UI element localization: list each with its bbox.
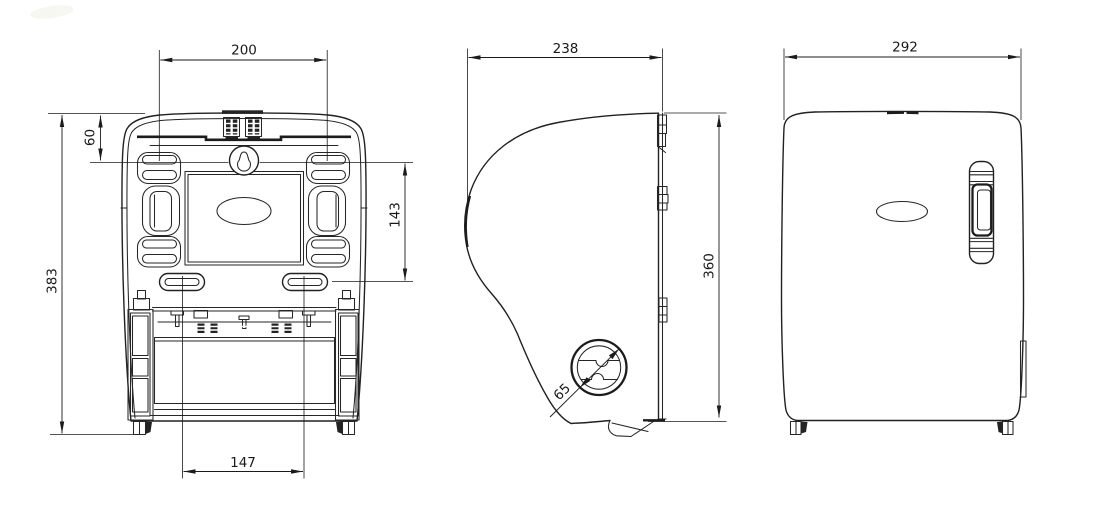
tray-channel-right	[336, 310, 360, 421]
dimensions: 200 60 383 143 147	[45, 40, 1022, 479]
knob-slot-top	[579, 361, 620, 367]
dim-label-238: 238	[553, 41, 579, 57]
dim-back-mount-width: 200	[159, 43, 327, 162]
front-foot-left	[791, 422, 808, 435]
dim-label-292: 292	[892, 40, 918, 56]
front-oval-emboss	[877, 202, 928, 222]
center-panel	[185, 172, 304, 266]
back-foot-right	[336, 422, 355, 435]
hinge-post-right	[339, 291, 355, 311]
top-clip-assembly	[222, 110, 263, 141]
keyhole-mount	[230, 146, 259, 175]
dim-back-lower-slots: 147	[183, 276, 305, 479]
dim-label-360: 360	[702, 253, 718, 279]
dim-back-top-offset: 60	[48, 114, 145, 161]
dim-side-depth: 238	[468, 41, 663, 209]
side-profile-outline	[465, 113, 658, 423]
dim-label-143: 143	[388, 202, 404, 228]
dim-label-65: 65	[550, 380, 573, 403]
mount-slot-group-bottom-left	[138, 237, 181, 268]
oval-emboss	[217, 198, 271, 225]
front-foot-right	[997, 422, 1013, 435]
mount-slot-group-top-right	[307, 153, 350, 184]
front-lever	[970, 162, 994, 264]
front-view	[782, 111, 1027, 434]
tray-channel-left	[128, 310, 153, 421]
side-latch-left	[143, 186, 180, 236]
dim-front-width: 292	[784, 40, 1021, 121]
bottom-tray	[128, 308, 359, 435]
top-inner-band	[137, 137, 351, 140]
dim-label-383: 383	[45, 268, 61, 294]
bottom-nozzle	[608, 420, 665, 436]
dim-label-147: 147	[230, 455, 256, 471]
technical-drawing: 200 60 383 143 147	[0, 0, 1094, 526]
turn-knob	[572, 340, 627, 395]
dim-label-200: 200	[231, 43, 257, 59]
faint-watermark	[29, 3, 74, 21]
tray-front-panel	[150, 338, 339, 416]
lower-oval-slot-left	[160, 274, 205, 291]
side-latch-right	[309, 186, 346, 236]
back-plate-edge	[658, 113, 666, 419]
dim-knob-diameter: 65	[550, 348, 620, 417]
dim-back-overall-height: 383	[45, 115, 135, 435]
hinge-post-left	[134, 291, 150, 311]
lever-window	[973, 185, 992, 236]
lower-oval-slot-right	[283, 274, 328, 291]
dim-label-60: 60	[83, 129, 99, 146]
front-body-outline	[782, 111, 1024, 420]
mount-slot-group-bottom-right	[307, 237, 350, 268]
drawing-canvas: 200 60 383 143 147	[0, 0, 1094, 526]
dim-side-height: 360	[648, 113, 727, 422]
back-foot-left	[134, 422, 153, 435]
dim-back-mount-column: 143	[332, 164, 413, 282]
